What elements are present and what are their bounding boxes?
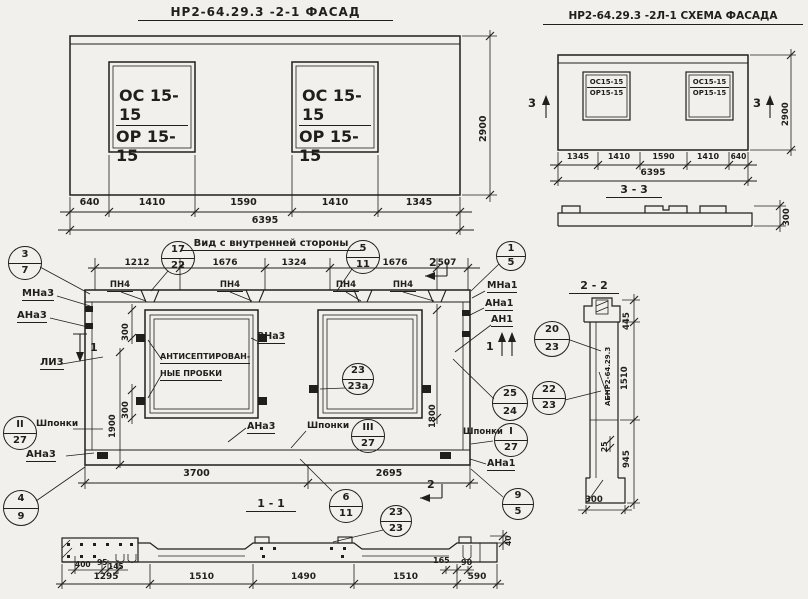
- callout-top-value: III: [352, 420, 384, 437]
- dim-label: 400: [75, 561, 91, 569]
- anchor-label: МНа1: [487, 281, 517, 293]
- lintel-label: ПН4: [390, 281, 416, 292]
- dim-label: 1490: [253, 573, 354, 583]
- dim-label: 590: [457, 573, 497, 583]
- anchor-label: АНа3: [247, 422, 275, 434]
- dim-label: 300: [122, 401, 131, 419]
- keys-label: Шпонки: [36, 420, 78, 430]
- anchor-label: МНа3: [22, 288, 54, 301]
- dim-label: 1410: [292, 198, 378, 208]
- dim-total-label: 6395: [558, 169, 748, 179]
- interior-title: Вид с внутренней стороны: [181, 238, 361, 251]
- section-1-1-title: 1 - 1: [246, 498, 296, 512]
- anchor-label: АНа1: [485, 299, 513, 311]
- anchor-label: АНа1: [487, 459, 515, 471]
- dim-label: 1212: [107, 259, 167, 269]
- dim-label: 1410: [687, 153, 729, 162]
- section-mark-2-bottom: 2: [427, 479, 435, 491]
- dim-label: 640: [70, 198, 109, 208]
- dim-label: 1295: [62, 573, 150, 583]
- dim-label: 1900: [109, 414, 118, 438]
- keys-label: Шпонки: [307, 422, 349, 432]
- callout-17-22: 17 22: [161, 241, 195, 275]
- dim-total-label: 6395: [70, 216, 460, 226]
- schema-title: НР2-64.29.3 -2Л-1 СХЕМА ФАСАДА: [543, 11, 803, 25]
- section-3-3-title: 3 - 3: [606, 184, 662, 198]
- dim-label: 445: [623, 312, 632, 330]
- callout-22-23: 22 23: [532, 381, 566, 415]
- window-series-label: ОС 15-15: [299, 86, 371, 126]
- panel-mark-label: АБНР2-64.29.3: [605, 347, 613, 406]
- schema-linework: [542, 49, 796, 232]
- dim-label: 640: [726, 153, 751, 161]
- dim-label: 1590: [195, 198, 292, 208]
- dim-label: 165: [433, 557, 450, 566]
- dim-label: 1590: [640, 153, 687, 162]
- dim-label: 1345: [558, 153, 598, 162]
- section-mark-2-top: 2: [429, 257, 437, 269]
- callout-top-value: 1: [497, 242, 525, 257]
- dim-thickness-label: 300: [783, 208, 792, 226]
- dim-label: 1676: [195, 259, 255, 269]
- window-series-label: ОС15-15: [587, 78, 626, 88]
- callout-I-27: I 27: [494, 423, 528, 457]
- callout-top-value: 17: [162, 242, 194, 259]
- dim-label: 95: [97, 559, 107, 567]
- anchor-label: ВНа3: [257, 332, 285, 344]
- dim-label: 1510: [354, 573, 457, 583]
- callout-25-24: 25 24: [492, 385, 528, 421]
- callout-top-value: 23: [343, 364, 373, 380]
- dim-label: 145: [108, 563, 124, 571]
- dim-label: 3700: [85, 469, 308, 479]
- callout-23-23: 23 23: [380, 505, 412, 537]
- callout-5-11: 5 11: [346, 240, 380, 274]
- anchor-label: АН1: [491, 315, 513, 327]
- dim-height-label: 2900: [782, 102, 791, 126]
- callout-top-value: 5: [347, 241, 379, 258]
- callout-top-value: 22: [533, 382, 565, 399]
- dim-label: 90: [461, 559, 472, 568]
- callout-9-5: 9 5: [502, 488, 534, 520]
- window-frame-label: ОР 15-15: [116, 126, 188, 165]
- plug-note-line2: НЫЕ ПРОБКИ: [160, 370, 222, 381]
- callout-top-value: 6: [330, 490, 362, 507]
- lintel-label: ПН4: [107, 281, 133, 292]
- dim-label: 300: [585, 496, 603, 505]
- dim-label: 1345: [378, 198, 460, 208]
- interior-linework: [73, 258, 516, 502]
- dim-label: 1510: [621, 366, 630, 390]
- section-mark-1-right: 1: [486, 341, 494, 353]
- window-frame-label: ОР 15-15: [299, 126, 371, 165]
- window-frame-label: ОР15-15: [590, 88, 623, 97]
- callout-top-value: 4: [4, 491, 38, 509]
- window-frame-label: ОР15-15: [693, 88, 726, 97]
- callout-1-5: 1 5: [496, 241, 526, 271]
- dim-label: 1510: [150, 573, 253, 583]
- facade-title: НР2-64.29.3 -2-1 ФАСАД: [138, 6, 393, 21]
- lintel-label: ПН4: [333, 281, 359, 292]
- dim-label: 2695: [308, 469, 470, 479]
- callout-4-9: 4 9: [3, 490, 39, 526]
- callout-top-value: 25: [493, 386, 527, 404]
- schema-window1-label: ОС15-15 ОР15-15: [585, 78, 628, 97]
- anchor-label: ЛИ3: [40, 357, 64, 370]
- callout-3-7: 3 7: [8, 246, 42, 280]
- section-2-2-title: 2 - 2: [569, 280, 619, 294]
- anchor-label: АНа3: [26, 449, 56, 462]
- facade-window2-label: ОС 15-15 ОР 15-15: [299, 86, 371, 165]
- callout-top-value: 20: [535, 322, 569, 340]
- dim-label: 945: [623, 450, 632, 468]
- callout-top-value: 3: [9, 247, 41, 264]
- anchor-label: АНа3: [17, 310, 47, 323]
- window-series-label: ОС15-15: [690, 78, 729, 88]
- dim-label: 25: [601, 442, 609, 452]
- callout-top-value: II: [4, 417, 36, 434]
- window-series-label: ОС 15-15: [116, 86, 188, 126]
- callout-6-11: 6 11: [329, 489, 363, 523]
- dim-label: 1324: [264, 259, 324, 269]
- dim-label: 1800: [429, 404, 438, 428]
- callout-23-23a: 23 23а: [342, 363, 374, 395]
- dim-label: 1410: [598, 153, 640, 162]
- callout-III-27: III 27: [351, 419, 385, 453]
- dim-label: 300: [122, 323, 131, 341]
- callout-top-value: 23: [381, 506, 411, 522]
- section-mark-3-left: 3: [528, 97, 536, 110]
- lintel-label: ПН4: [217, 281, 243, 292]
- dim-label: 1410: [109, 198, 195, 208]
- callout-II-27: II 27: [3, 416, 37, 450]
- callout-20-23: 20 23: [534, 321, 570, 357]
- section-mark-1-left: 1: [90, 342, 98, 354]
- schema-window2-label: ОС15-15 ОР15-15: [688, 78, 731, 97]
- plug-note-line1: АНТИСЕПТИРОВАН-: [160, 353, 250, 364]
- callout-top-value: I: [495, 424, 527, 441]
- blueprint-sheet: НР2-64.29.3 -2-1 ФАСАД ОС 15-15 ОР 15-15…: [0, 0, 808, 599]
- dim-height-label: 2900: [479, 116, 489, 142]
- section-mark-3-right: 3: [753, 97, 761, 110]
- callout-top-value: 9: [503, 489, 533, 505]
- dim-label: 40: [505, 536, 513, 546]
- facade-window1-label: ОС 15-15 ОР 15-15: [116, 86, 188, 165]
